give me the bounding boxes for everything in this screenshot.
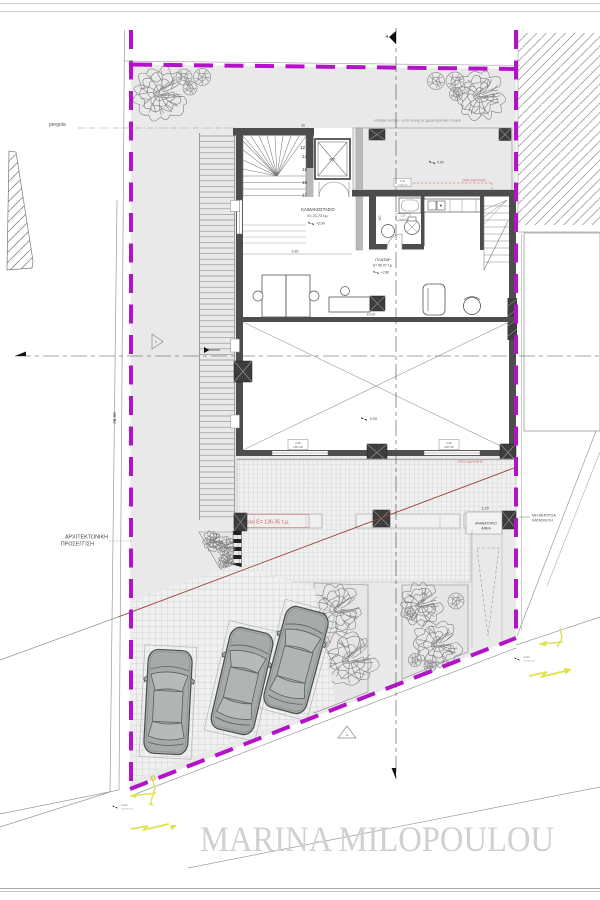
svg-text:16: 16 [302,180,308,185]
svg-text:pergola: pergola [49,122,66,128]
svg-text:ΑΜΕΑ: ΑΜΕΑ [481,527,491,531]
svg-text:Ε= 21.73 τ.μ.: Ε= 21.73 τ.μ. [308,214,329,218]
svg-text:Δ: Δ [346,732,349,737]
svg-text:Ε= 50.07 τ.μ.: Ε= 50.07 τ.μ. [373,264,393,268]
svg-text:ΥΨΟΜ 0.00: ΥΨΟΜ 0.00 [121,809,133,811]
svg-text:1.20: 1.20 [481,507,488,511]
svg-text:ΟΡΙΟ ΚΑΛΥΨΗΣ: ΟΡΙΟ ΚΑΛΥΨΗΣ [457,460,483,464]
svg-text:12: 12 [300,145,306,150]
svg-text:+0.00: +0.00 [523,655,530,659]
svg-text:+2.80: +2.80 [381,271,389,275]
svg-text:1.10: 1.10 [400,179,406,183]
svg-text:15: 15 [302,167,308,172]
svg-text:ΠΛΑΤΑΡ: ΠΛΑΤΑΡ [375,257,391,262]
svg-text:2.80*1.20: 2.80*1.20 [293,447,304,449]
svg-text:ΚΛΙΜΑΚΟΣΤΑΣΙΟ: ΚΛΙΜΑΚΟΣΤΑΣΙΟ [301,207,335,212]
svg-text:14: 14 [302,154,308,159]
svg-text:MARINA MILOPOULOU: MARINA MILOPOULOU [200,819,554,859]
svg-text:+0.00: +0.00 [121,803,128,807]
svg-text:1.10: 1.10 [401,215,406,218]
svg-text:Ρ: Ρ [155,341,157,345]
svg-text:0.00: 0.00 [370,417,377,421]
svg-text:ΚΑΤΑΣΚΕΥΗ: ΚΑΤΑΣΚΕΥΗ [532,519,553,523]
svg-text:2.80*1.20: 2.80*1.20 [444,447,455,449]
svg-text:1.00x2.20: 1.00x2.20 [398,185,408,187]
svg-text:WC: WC [378,215,382,221]
svg-text:17: 17 [302,193,308,198]
svg-text:10.02: 10.02 [367,313,376,317]
svg-text:ΑΡΧΙΤΕΚΤΟΝΙΚΗ: ΑΡΧΙΤΕΚΤΟΝΙΚΗ [65,535,108,541]
svg-text:ΑΒΓ: ΑΒΓ [329,158,336,162]
svg-text:5.85: 5.85 [292,250,299,254]
svg-text:ΜΗ ΘΕΡΟΥΣΑ: ΜΗ ΘΕΡΟΥΣΑ [532,514,556,518]
svg-text:ΑΝΑΒΑΤΟΡΙΟ: ΑΝΑΒΑΤΟΡΙΟ [475,522,497,526]
svg-text:0.00: 0.00 [437,161,444,165]
svg-text:ΠΡΟΣΕΓΓΙΣΗ: ΠΡΟΣΕΓΓΙΣΗ [61,542,94,548]
svg-text:ΥΨΟΜ 0.00: ΥΨΟΜ 0.00 [523,661,535,663]
svg-text:ΟΡΙΟ ΚΑΛΥΨΗΣ: ΟΡΙΟ ΚΑΛΥΨΗΣ [462,179,486,183]
svg-text:2.30: 2.30 [295,441,301,445]
svg-text:2.30: 2.30 [446,441,452,445]
svg-text:+2.00: +2.00 [316,222,325,226]
svg-text:28.95: 28.95 [112,412,117,424]
svg-text:υπαιθριο θεατρο · εντος κλινης: υπαιθριο θεατρο · εντος κλινης με χαρακτ… [374,119,461,123]
svg-text:1.00x2.20: 1.00x2.20 [399,219,409,221]
